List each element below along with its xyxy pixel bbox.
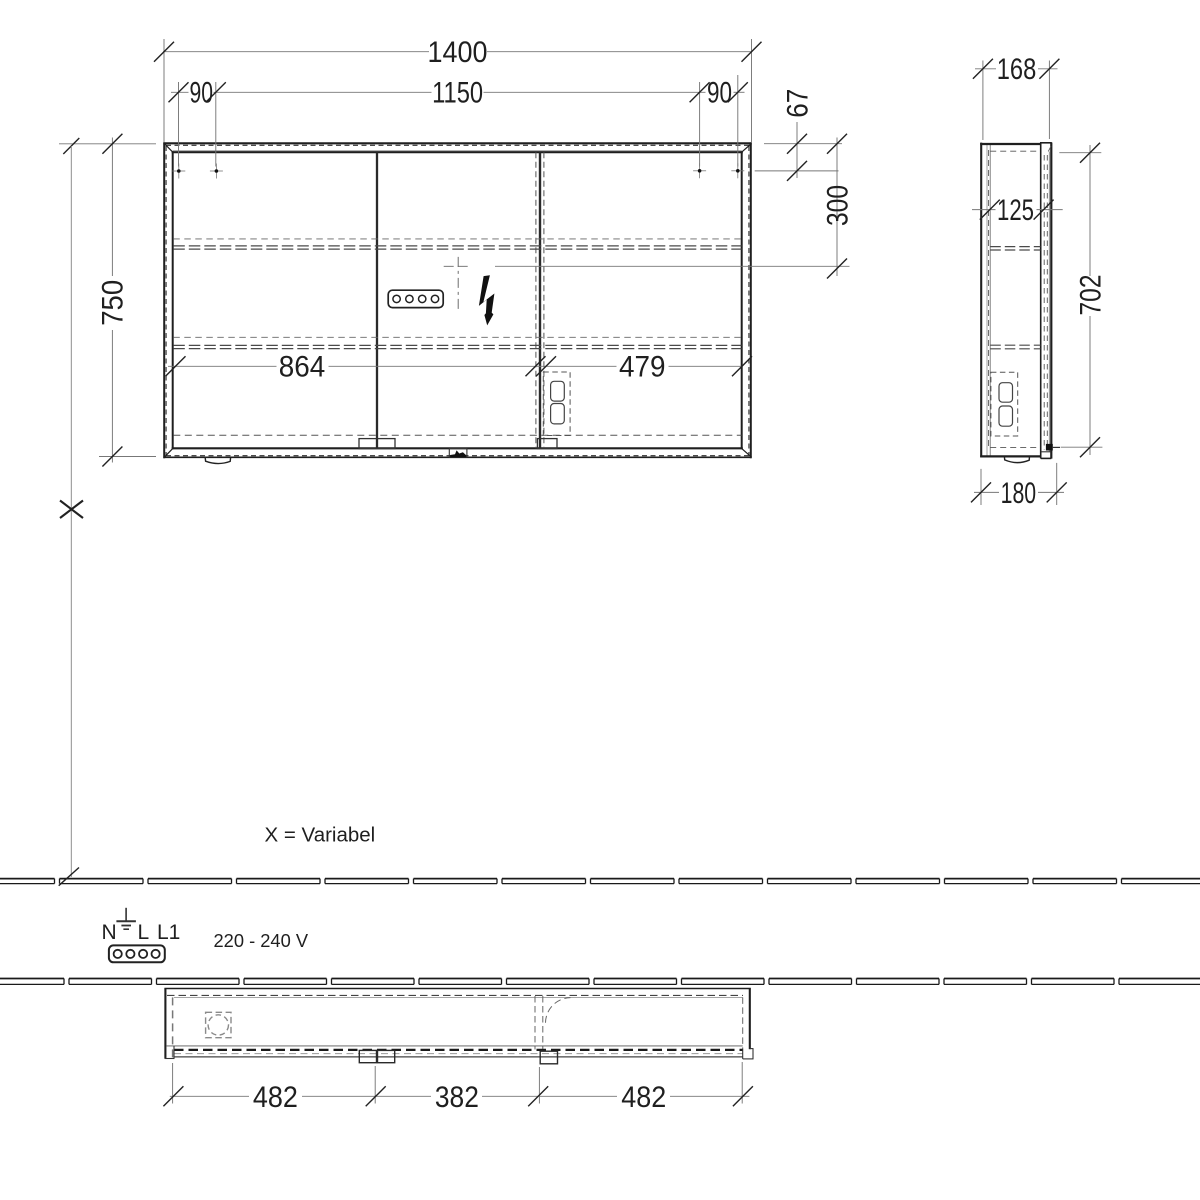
svg-text:482: 482 <box>253 1081 298 1114</box>
svg-text:90: 90 <box>189 77 213 110</box>
svg-text:220 - 240 V: 220 - 240 V <box>214 930 309 951</box>
svg-text:1150: 1150 <box>432 77 483 110</box>
svg-text:1400: 1400 <box>428 36 488 69</box>
svg-text:482: 482 <box>621 1081 666 1114</box>
svg-text:90: 90 <box>707 77 732 110</box>
svg-text:702: 702 <box>1074 275 1107 316</box>
svg-text:300: 300 <box>822 185 855 226</box>
svg-text:L: L <box>138 921 150 944</box>
svg-text:125: 125 <box>997 194 1034 227</box>
svg-text:168: 168 <box>997 53 1037 86</box>
svg-text:750: 750 <box>97 280 130 326</box>
svg-text:L1: L1 <box>157 921 180 944</box>
svg-text:67: 67 <box>781 89 814 118</box>
svg-text:479: 479 <box>619 350 666 383</box>
svg-text:N: N <box>102 921 117 944</box>
svg-text:864: 864 <box>279 350 326 383</box>
svg-text:X = Variabel: X = Variabel <box>265 824 376 847</box>
svg-text:382: 382 <box>435 1081 479 1114</box>
svg-text:180: 180 <box>1001 477 1037 510</box>
